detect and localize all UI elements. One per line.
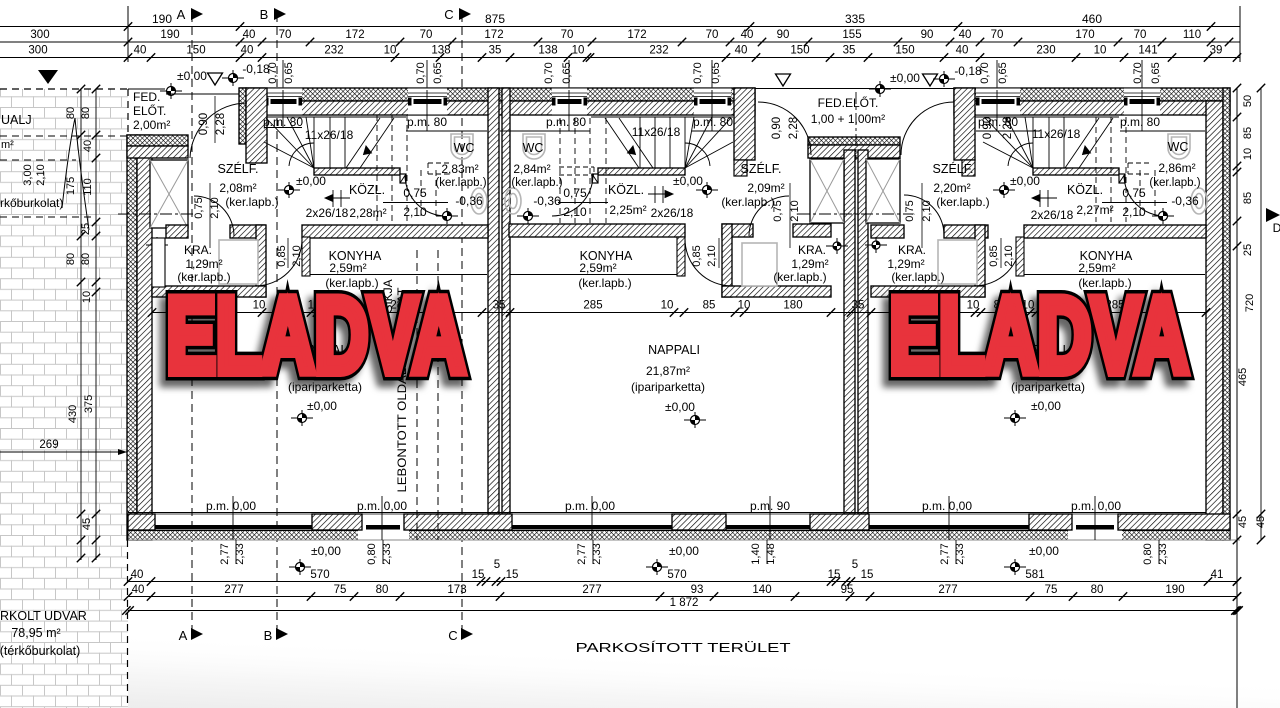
svg-text:2,77: 2,77 bbox=[219, 543, 231, 564]
svg-text:35: 35 bbox=[493, 300, 506, 312]
svg-text:(ker.lapb.): (ker.lapb.) bbox=[225, 195, 278, 209]
svg-text:70: 70 bbox=[991, 29, 1004, 41]
svg-text:p.m. 0,00: p.m. 0,00 bbox=[565, 499, 615, 513]
svg-text:FED.ELŐT.: FED.ELŐT. bbox=[818, 95, 879, 110]
svg-text:p.m. 80: p.m. 80 bbox=[693, 115, 733, 129]
svg-text:21,87m²: 21,87m² bbox=[646, 364, 690, 378]
svg-text:5: 5 bbox=[852, 559, 858, 571]
svg-text:110: 110 bbox=[82, 178, 94, 196]
svg-text:5: 5 bbox=[494, 559, 500, 571]
svg-text:15: 15 bbox=[861, 569, 874, 581]
svg-text:±0,00: ±0,00 bbox=[673, 174, 703, 188]
svg-text:85: 85 bbox=[1242, 192, 1254, 204]
svg-text:269: 269 bbox=[39, 439, 58, 451]
svg-text:KRA.: KRA. bbox=[798, 243, 826, 257]
svg-text:80: 80 bbox=[80, 107, 92, 119]
svg-text:875: 875 bbox=[485, 12, 505, 26]
svg-text:80: 80 bbox=[65, 107, 77, 119]
svg-text:2,10: 2,10 bbox=[209, 197, 221, 218]
svg-text:±0,00: ±0,00 bbox=[665, 400, 695, 414]
svg-text:WC: WC bbox=[454, 141, 475, 155]
svg-text:(ker.lapb.): (ker.lapb.) bbox=[721, 195, 774, 209]
svg-text:0,65: 0,65 bbox=[283, 62, 295, 83]
svg-text:11x26/18: 11x26/18 bbox=[632, 125, 681, 139]
svg-text:2,27m²: 2,27m² bbox=[1076, 203, 1113, 217]
svg-text:1,00 + 1,00m²: 1,00 + 1,00m² bbox=[811, 112, 885, 126]
svg-text:±0,00: ±0,00 bbox=[890, 71, 920, 85]
svg-text:(ker.lapb.): (ker.lapb.) bbox=[936, 195, 989, 209]
svg-text:1,40: 1,40 bbox=[750, 543, 762, 564]
svg-text:2,10: 2,10 bbox=[706, 245, 718, 266]
svg-text:1,29m²: 1,29m² bbox=[887, 257, 924, 271]
svg-text:p.m. 0,00: p.m. 0,00 bbox=[206, 499, 256, 513]
svg-text:720: 720 bbox=[1244, 294, 1256, 312]
svg-text:(ker.lapb.): (ker.lapb.) bbox=[578, 276, 631, 290]
svg-text:-0,36: -0,36 bbox=[533, 194, 561, 208]
svg-text:p.m. 0,00: p.m. 0,00 bbox=[1071, 499, 1121, 513]
svg-text:(térkőburkolat): (térkőburkolat) bbox=[0, 644, 80, 658]
svg-text:465: 465 bbox=[1237, 368, 1249, 386]
svg-text:80: 80 bbox=[376, 584, 389, 596]
svg-text:0,85: 0,85 bbox=[691, 245, 703, 266]
svg-text:25: 25 bbox=[80, 223, 92, 235]
svg-text:0,80: 0,80 bbox=[1142, 543, 1154, 564]
svg-text:2,28m²: 2,28m² bbox=[349, 206, 386, 220]
svg-text:(ker.lapb.): (ker.lapb.) bbox=[511, 177, 562, 189]
svg-text:p.m. 0,00: p.m. 0,00 bbox=[922, 499, 972, 513]
svg-text:155: 155 bbox=[842, 29, 861, 41]
svg-text:300: 300 bbox=[30, 29, 49, 41]
svg-text:70: 70 bbox=[420, 29, 433, 41]
svg-text:2,10: 2,10 bbox=[563, 205, 587, 219]
svg-text:2,08m²: 2,08m² bbox=[219, 181, 256, 195]
svg-text:2,28: 2,28 bbox=[215, 113, 227, 135]
svg-text:11x26/18: 11x26/18 bbox=[305, 128, 354, 142]
svg-text:80: 80 bbox=[1091, 584, 1104, 596]
svg-text:277: 277 bbox=[224, 584, 243, 596]
svg-text:m²: m² bbox=[1, 139, 14, 151]
svg-text:75: 75 bbox=[1045, 584, 1058, 596]
svg-text:70: 70 bbox=[561, 29, 574, 41]
svg-text:0,65: 0,65 bbox=[1150, 62, 1162, 83]
svg-text:±0,00: ±0,00 bbox=[669, 544, 699, 558]
svg-text:2,28: 2,28 bbox=[788, 117, 800, 139]
svg-text:A: A bbox=[177, 7, 186, 22]
svg-text:A: A bbox=[179, 628, 188, 643]
svg-text:p.m. 80: p.m. 80 bbox=[546, 115, 586, 129]
svg-text:285: 285 bbox=[583, 300, 602, 312]
svg-text:2,09m²: 2,09m² bbox=[747, 181, 784, 195]
svg-text:FED.: FED. bbox=[133, 90, 160, 104]
svg-text:150: 150 bbox=[186, 45, 205, 57]
svg-text:80: 80 bbox=[80, 253, 92, 265]
svg-text:0,90: 0,90 bbox=[198, 113, 210, 135]
svg-text:0,75: 0,75 bbox=[563, 186, 587, 200]
svg-text:190: 190 bbox=[152, 12, 172, 26]
svg-text:ELADVA: ELADVA bbox=[890, 275, 1189, 395]
svg-text:35: 35 bbox=[843, 45, 856, 57]
svg-text:581: 581 bbox=[1025, 569, 1044, 581]
svg-text:±0,00: ±0,00 bbox=[1010, 174, 1040, 188]
svg-text:173: 173 bbox=[447, 584, 466, 596]
svg-text:2,28: 2,28 bbox=[1002, 117, 1014, 139]
svg-text:335: 335 bbox=[845, 12, 865, 26]
svg-text:C: C bbox=[444, 7, 453, 22]
svg-text:150: 150 bbox=[790, 45, 809, 57]
svg-text:40: 40 bbox=[132, 584, 145, 596]
svg-text:45: 45 bbox=[1237, 516, 1249, 528]
svg-text:40: 40 bbox=[956, 45, 969, 57]
svg-text:2,59m²: 2,59m² bbox=[329, 261, 366, 275]
svg-text:40: 40 bbox=[134, 45, 147, 57]
svg-text:WC: WC bbox=[523, 141, 544, 155]
svg-text:D: D bbox=[1273, 221, 1280, 235]
svg-text:2,00m²: 2,00m² bbox=[133, 118, 170, 132]
svg-text:2,10: 2,10 bbox=[789, 200, 801, 221]
svg-text:41: 41 bbox=[1211, 569, 1224, 581]
svg-text:75: 75 bbox=[334, 584, 347, 596]
svg-text:70: 70 bbox=[279, 29, 292, 41]
svg-text:230: 230 bbox=[1036, 45, 1055, 57]
svg-text:0,75: 0,75 bbox=[772, 200, 784, 221]
svg-text:570: 570 bbox=[310, 569, 329, 581]
svg-text:190: 190 bbox=[160, 29, 179, 41]
svg-text:170: 170 bbox=[1075, 29, 1094, 41]
svg-text:172: 172 bbox=[484, 29, 503, 41]
svg-text:2x26/18: 2x26/18 bbox=[651, 206, 694, 220]
svg-text:(ker.lapb.): (ker.lapb.) bbox=[1149, 177, 1200, 189]
svg-text:50: 50 bbox=[1242, 95, 1254, 107]
svg-text:0,70: 0,70 bbox=[692, 62, 704, 83]
svg-text:2x26/18: 2x26/18 bbox=[1031, 208, 1074, 222]
svg-text:ELŐT.: ELŐT. bbox=[133, 103, 166, 118]
svg-text:10: 10 bbox=[1094, 45, 1107, 57]
svg-text:180: 180 bbox=[783, 300, 802, 312]
svg-text:10: 10 bbox=[572, 45, 585, 57]
svg-text:SZÉLF.: SZÉLF. bbox=[741, 161, 782, 176]
svg-text:2,10: 2,10 bbox=[35, 164, 47, 185]
svg-text:2,83m²: 2,83m² bbox=[441, 162, 478, 176]
svg-text:10: 10 bbox=[1242, 148, 1254, 160]
svg-text:±0,00: ±0,00 bbox=[311, 544, 341, 558]
svg-text:2,77: 2,77 bbox=[576, 543, 588, 564]
svg-text:-0,18: -0,18 bbox=[242, 62, 270, 76]
svg-text:±0,00: ±0,00 bbox=[1029, 544, 1059, 558]
svg-text:85: 85 bbox=[1242, 127, 1254, 139]
svg-text:0,85: 0,85 bbox=[276, 245, 288, 266]
svg-text:KÖZL.: KÖZL. bbox=[608, 183, 644, 197]
svg-text:KÖZL.: KÖZL. bbox=[1067, 183, 1103, 197]
svg-text:172: 172 bbox=[627, 29, 646, 41]
svg-text:2,10: 2,10 bbox=[291, 245, 303, 266]
svg-text:(ker.lapb.): (ker.lapb.) bbox=[435, 177, 486, 189]
svg-text:0,70: 0,70 bbox=[543, 62, 555, 83]
svg-text:140: 140 bbox=[752, 584, 771, 596]
svg-text:B: B bbox=[260, 7, 269, 22]
svg-text:0,65: 0,65 bbox=[432, 62, 444, 83]
svg-text:NAPPALI: NAPPALI bbox=[648, 343, 700, 357]
svg-text:80: 80 bbox=[65, 253, 77, 265]
svg-text:2,10: 2,10 bbox=[1003, 245, 1015, 266]
svg-text:0,75: 0,75 bbox=[193, 197, 205, 218]
svg-text:2,86m²: 2,86m² bbox=[1158, 161, 1195, 175]
svg-text:232: 232 bbox=[324, 45, 343, 57]
svg-text:±0,00: ±0,00 bbox=[177, 69, 207, 83]
svg-text:0,80: 0,80 bbox=[366, 543, 378, 564]
svg-text:0,90: 0,90 bbox=[982, 117, 994, 139]
svg-text:SZÉLF.: SZÉLF. bbox=[218, 161, 259, 176]
svg-text:570: 570 bbox=[667, 569, 686, 581]
svg-text:138: 138 bbox=[431, 45, 450, 57]
svg-text:±0,00: ±0,00 bbox=[307, 399, 337, 413]
svg-text:-0,18: -0,18 bbox=[954, 64, 982, 78]
svg-text:B: B bbox=[264, 628, 273, 643]
svg-text:0,85: 0,85 bbox=[988, 245, 1000, 266]
svg-text:1 872: 1 872 bbox=[670, 597, 699, 609]
svg-text:25: 25 bbox=[1242, 244, 1254, 256]
svg-text:KRA.: KRA. bbox=[184, 243, 212, 257]
svg-text:40: 40 bbox=[243, 29, 256, 41]
svg-text:40: 40 bbox=[741, 29, 754, 41]
svg-text:2,25m²: 2,25m² bbox=[609, 203, 646, 217]
svg-text:(térkőburkolat): (térkőburkolat) bbox=[0, 196, 63, 210]
svg-text:2,20m²: 2,20m² bbox=[933, 181, 970, 195]
svg-text:15: 15 bbox=[506, 569, 519, 581]
svg-text:40: 40 bbox=[735, 45, 748, 57]
svg-text:277: 277 bbox=[938, 584, 957, 596]
svg-text:2,10: 2,10 bbox=[1122, 205, 1146, 219]
svg-text:2,77: 2,77 bbox=[939, 543, 951, 564]
svg-text:2,10: 2,10 bbox=[921, 200, 933, 221]
svg-text:2,59m²: 2,59m² bbox=[1078, 261, 1115, 275]
svg-text:1,29m²: 1,29m² bbox=[791, 257, 828, 271]
svg-text:0,75: 0,75 bbox=[1122, 186, 1146, 200]
svg-text:0,90: 0,90 bbox=[771, 117, 783, 139]
svg-text:40: 40 bbox=[82, 140, 94, 152]
svg-text:UALJ: UALJ bbox=[1, 113, 32, 127]
svg-text:40: 40 bbox=[131, 569, 144, 581]
svg-text:RKOLT UDVAR: RKOLT UDVAR bbox=[0, 609, 87, 623]
svg-text:35: 35 bbox=[489, 45, 502, 57]
svg-text:10: 10 bbox=[738, 300, 751, 312]
svg-text:p.m. 80: p.m. 80 bbox=[1120, 115, 1160, 129]
svg-text:(ipariparketta): (ipariparketta) bbox=[631, 380, 705, 394]
svg-text:40: 40 bbox=[959, 29, 972, 41]
svg-text:460: 460 bbox=[1082, 12, 1102, 26]
svg-text:(ker.lapb.): (ker.lapb.) bbox=[773, 270, 826, 284]
svg-text:0,75: 0,75 bbox=[403, 186, 427, 200]
svg-text:10: 10 bbox=[661, 300, 674, 312]
svg-text:172: 172 bbox=[345, 29, 364, 41]
svg-text:277: 277 bbox=[582, 584, 601, 596]
svg-text:11x26/18: 11x26/18 bbox=[1032, 127, 1081, 141]
svg-text:ELADVA: ELADVA bbox=[167, 275, 466, 395]
svg-text:232: 232 bbox=[649, 45, 668, 57]
svg-text:141: 141 bbox=[1138, 45, 1157, 57]
svg-text:±0,00: ±0,00 bbox=[296, 174, 326, 188]
svg-text:3,00: 3,00 bbox=[22, 164, 34, 185]
svg-text:90: 90 bbox=[777, 29, 790, 41]
svg-text:0,65: 0,65 bbox=[997, 62, 1009, 83]
svg-text:45: 45 bbox=[1255, 516, 1267, 528]
svg-text:2,84m²: 2,84m² bbox=[513, 162, 550, 176]
svg-text:C: C bbox=[448, 628, 457, 643]
svg-text:85: 85 bbox=[703, 300, 716, 312]
svg-text:10: 10 bbox=[81, 291, 93, 303]
svg-text:70: 70 bbox=[1134, 29, 1147, 41]
svg-text:10: 10 bbox=[384, 45, 397, 57]
svg-text:0,65: 0,65 bbox=[561, 62, 573, 83]
svg-text:110: 110 bbox=[1183, 29, 1201, 41]
svg-text:0,75: 0,75 bbox=[904, 200, 916, 221]
svg-text:150: 150 bbox=[895, 45, 914, 57]
svg-text:300: 300 bbox=[28, 45, 47, 57]
svg-text:90: 90 bbox=[921, 29, 934, 41]
svg-text:WC: WC bbox=[1168, 140, 1189, 154]
svg-text:430: 430 bbox=[67, 405, 79, 423]
svg-text:78,95 m²: 78,95 m² bbox=[11, 626, 60, 640]
svg-text:0,70: 0,70 bbox=[415, 62, 427, 83]
svg-text:2x26/18: 2x26/18 bbox=[306, 206, 349, 220]
svg-text:138: 138 bbox=[538, 45, 557, 57]
svg-text:±0,00: ±0,00 bbox=[1031, 399, 1061, 413]
svg-text:PARKOSÍTOTT TERÜLET: PARKOSÍTOTT TERÜLET bbox=[576, 640, 791, 655]
svg-text:-0,36: -0,36 bbox=[455, 194, 483, 208]
svg-text:SZÉLF.: SZÉLF. bbox=[933, 161, 974, 176]
svg-text:175: 175 bbox=[65, 177, 77, 195]
svg-text:190: 190 bbox=[1165, 584, 1184, 596]
svg-text:93: 93 bbox=[691, 584, 704, 596]
svg-text:KÖZL.: KÖZL. bbox=[349, 183, 385, 197]
svg-text:1,29m²: 1,29m² bbox=[185, 257, 222, 271]
svg-text:2,10: 2,10 bbox=[403, 205, 427, 219]
svg-text:2,59m²: 2,59m² bbox=[579, 261, 616, 275]
svg-text:375: 375 bbox=[83, 395, 95, 413]
svg-text:-0,36: -0,36 bbox=[1171, 194, 1199, 208]
svg-text:70: 70 bbox=[706, 29, 719, 41]
svg-text:45: 45 bbox=[81, 518, 93, 530]
